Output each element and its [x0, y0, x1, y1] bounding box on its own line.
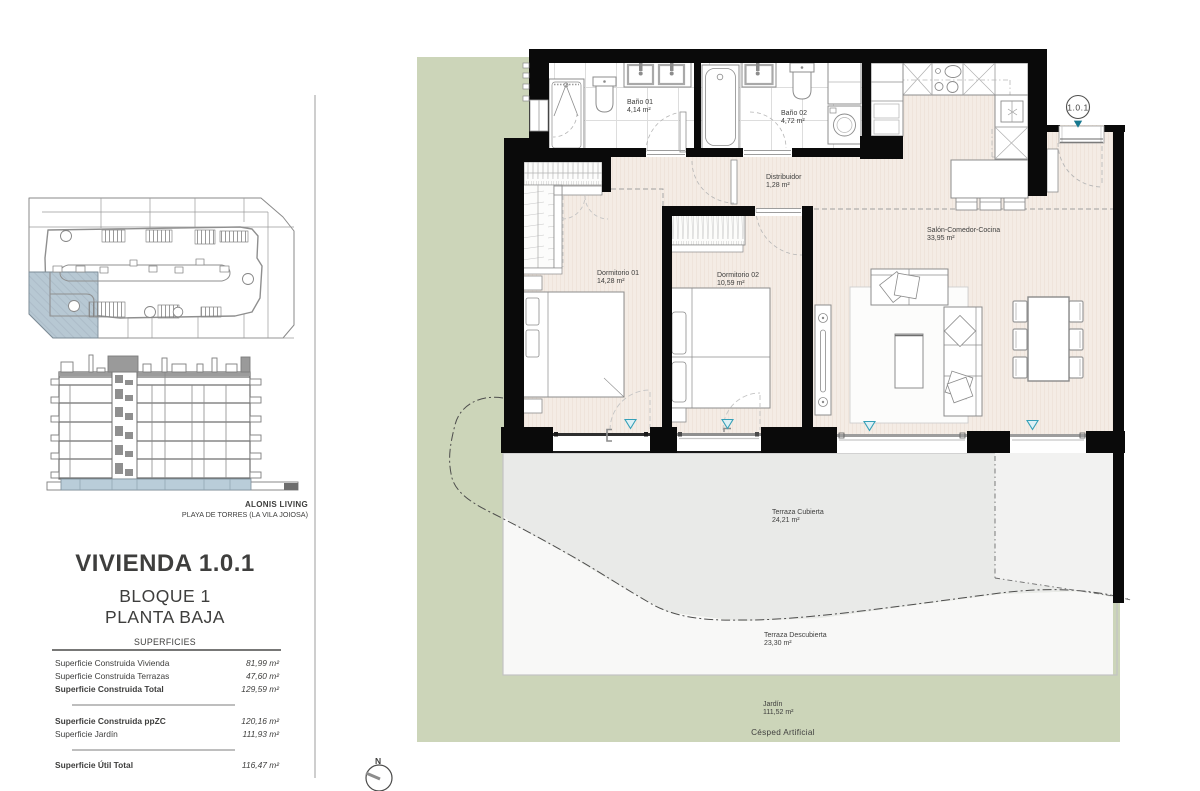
- svg-text:ALONIS LIVING: ALONIS LIVING: [245, 500, 308, 509]
- svg-text:111,93 m²: 111,93 m²: [243, 729, 281, 739]
- svg-text:23,30 m²: 23,30 m²: [764, 640, 792, 647]
- svg-text:4,72 m²: 4,72 m²: [781, 118, 805, 125]
- svg-text:Salón-Comedor-Cocina: Salón-Comedor-Cocina: [927, 227, 1000, 234]
- svg-text:47,60 m²: 47,60 m²: [246, 671, 280, 681]
- svg-text:Jardín: Jardín: [763, 701, 783, 708]
- svg-text:Baño 02: Baño 02: [781, 110, 807, 117]
- svg-text:24,21 m²: 24,21 m²: [772, 517, 800, 524]
- svg-text:Superficie Construida Vivienda: Superficie Construida Vivienda: [55, 658, 170, 668]
- svg-text:120,16 m²: 120,16 m²: [241, 716, 280, 726]
- svg-text:N: N: [375, 756, 381, 766]
- svg-text:Césped Artificial: Césped Artificial: [751, 728, 815, 737]
- svg-text:Dormitorio 02: Dormitorio 02: [717, 272, 759, 279]
- svg-text:Distribuidor: Distribuidor: [766, 174, 802, 181]
- svg-text:129,59 m²: 129,59 m²: [241, 684, 280, 694]
- svg-text:Superficie Construida ppZC: Superficie Construida ppZC: [55, 716, 166, 726]
- svg-text:111,52 m²: 111,52 m²: [763, 709, 794, 716]
- svg-text:BLOQUE 1: BLOQUE 1: [119, 586, 211, 606]
- svg-text:116,47 m²: 116,47 m²: [242, 760, 280, 770]
- svg-text:33,95 m²: 33,95 m²: [927, 235, 955, 242]
- svg-text:Terraza Cubierta: Terraza Cubierta: [772, 509, 824, 516]
- svg-text:Superficie Jardín: Superficie Jardín: [55, 729, 118, 739]
- svg-text:Superficie Construida Total: Superficie Construida Total: [55, 684, 164, 694]
- svg-text:VIVIENDA 1.0.1: VIVIENDA 1.0.1: [75, 550, 255, 577]
- svg-text:PLANTA BAJA: PLANTA BAJA: [105, 607, 225, 627]
- svg-text:PLAYA DE TORRES (LA VILA JOIOS: PLAYA DE TORRES (LA VILA JOIOSA): [182, 510, 308, 519]
- svg-text:Baño 01: Baño 01: [627, 99, 653, 106]
- svg-text:81,99 m²: 81,99 m²: [246, 658, 280, 668]
- svg-text:1,28 m²: 1,28 m²: [766, 182, 790, 189]
- svg-text:Dormitorio 01: Dormitorio 01: [597, 270, 639, 277]
- svg-text:Terraza Descubierta: Terraza Descubierta: [764, 632, 827, 639]
- svg-text:1.0.1: 1.0.1: [1067, 103, 1088, 113]
- svg-text:SUPERFICIES: SUPERFICIES: [134, 637, 196, 647]
- svg-text:10,59 m²: 10,59 m²: [717, 280, 745, 287]
- svg-text:Superficie Construida Terrazas: Superficie Construida Terrazas: [55, 671, 169, 681]
- svg-text:4,14 m²: 4,14 m²: [627, 107, 651, 114]
- svg-text:Superficie Útil Total: Superficie Útil Total: [55, 759, 133, 770]
- svg-text:14,28 m²: 14,28 m²: [597, 278, 625, 285]
